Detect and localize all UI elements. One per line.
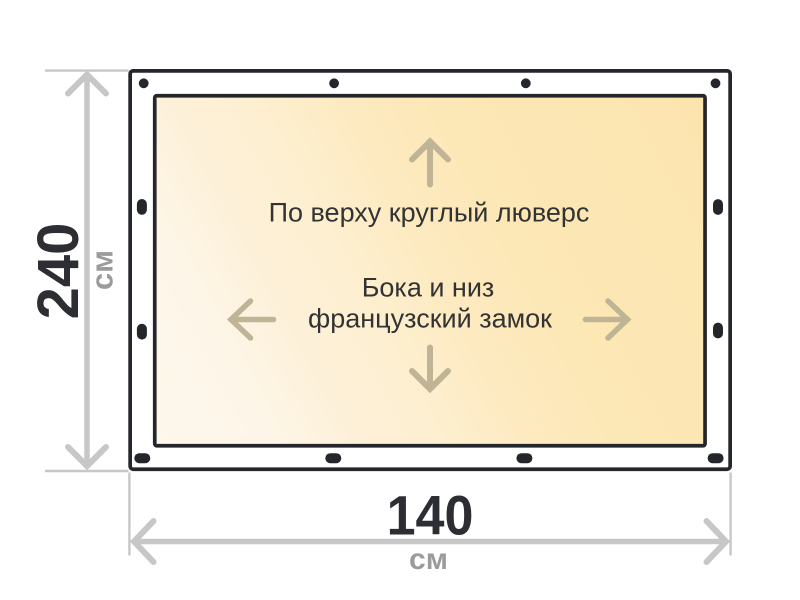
svg-text:140: 140 [387,485,474,547]
svg-text:Бока и низ: Бока и низ [362,273,495,303]
svg-text:см: см [409,543,448,576]
svg-text:По верху круглый люверс: По верху круглый люверс [269,198,590,228]
svg-text:французский замок: французский замок [308,304,552,334]
svg-text:см: см [85,250,120,290]
svg-text:240: 240 [26,223,91,320]
